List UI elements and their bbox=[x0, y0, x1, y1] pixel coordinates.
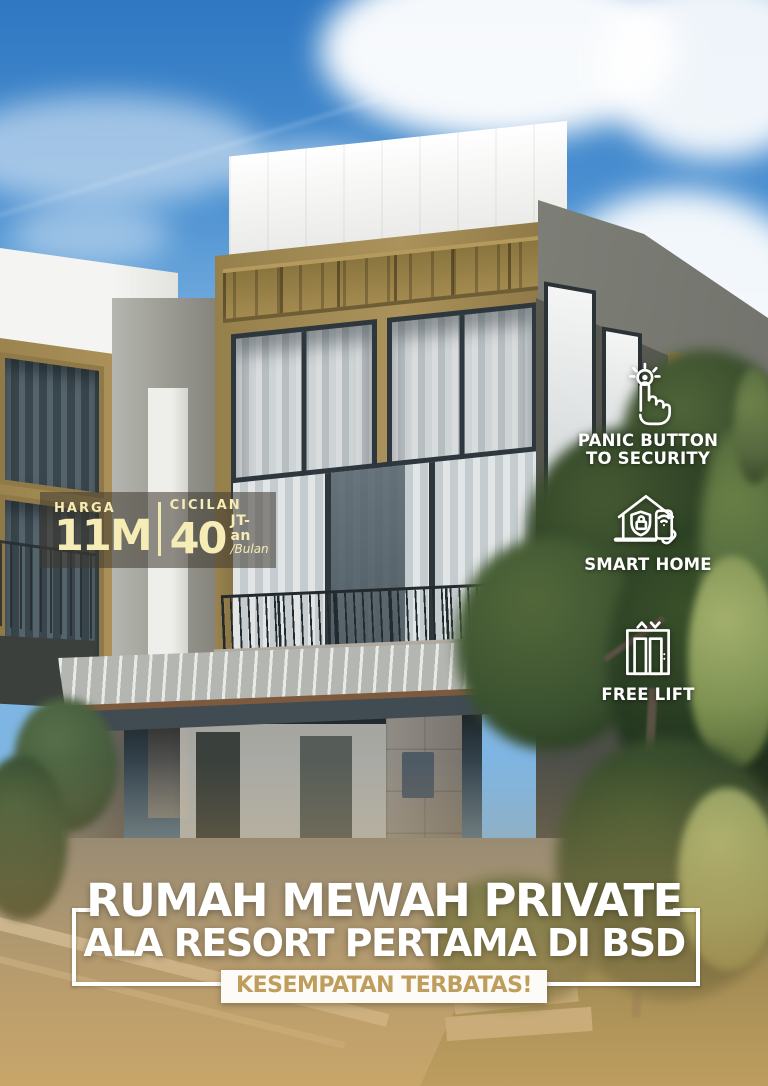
limited-offer-badge: KESEMPATAN TERBATAS! bbox=[221, 970, 547, 1003]
smart-home-icon bbox=[608, 486, 688, 552]
feature-label: SMART HOME bbox=[584, 556, 712, 574]
panic-button-icon bbox=[615, 362, 681, 428]
feature-label: PANIC BUTTON TO SECURITY bbox=[578, 432, 718, 468]
headline: RUMAH MEWAH PRIVATE ALA RESORT PERTAMA D… bbox=[0, 878, 768, 1003]
cicilan-value: 40 bbox=[170, 520, 226, 560]
feature-label: FREE LIFT bbox=[601, 686, 694, 704]
cicilan-label: CICILAN bbox=[170, 498, 269, 514]
cicilan-per: /Bulan bbox=[230, 543, 268, 556]
price-cicilan: CICILAN 40 JT-an /Bulan bbox=[170, 498, 269, 559]
cicilan-unit: JT-an bbox=[230, 514, 268, 543]
feature-panic-button: PANIC BUTTON TO SECURITY bbox=[552, 362, 744, 468]
feature-list: PANIC BUTTON TO SECURITY SMART HOME bbox=[552, 0, 744, 760]
price-divider bbox=[158, 502, 161, 556]
feature-free-lift: FREE LIFT bbox=[552, 616, 744, 704]
feature-smart-home: SMART HOME bbox=[552, 486, 744, 574]
free-lift-icon bbox=[615, 616, 681, 682]
harga-value: 11M bbox=[54, 517, 151, 557]
left-house-window bbox=[0, 352, 104, 499]
real-estate-poster: HARGA 11M CICILAN 40 JT-an /Bulan bbox=[0, 0, 768, 1086]
headline-line2: ALA RESORT PERTAMA DI BSD bbox=[0, 924, 768, 964]
price-badge: HARGA 11M CICILAN 40 JT-an /Bulan bbox=[40, 492, 276, 568]
price-harga: HARGA 11M bbox=[54, 501, 151, 556]
headline-line1: RUMAH MEWAH PRIVATE bbox=[0, 878, 768, 923]
